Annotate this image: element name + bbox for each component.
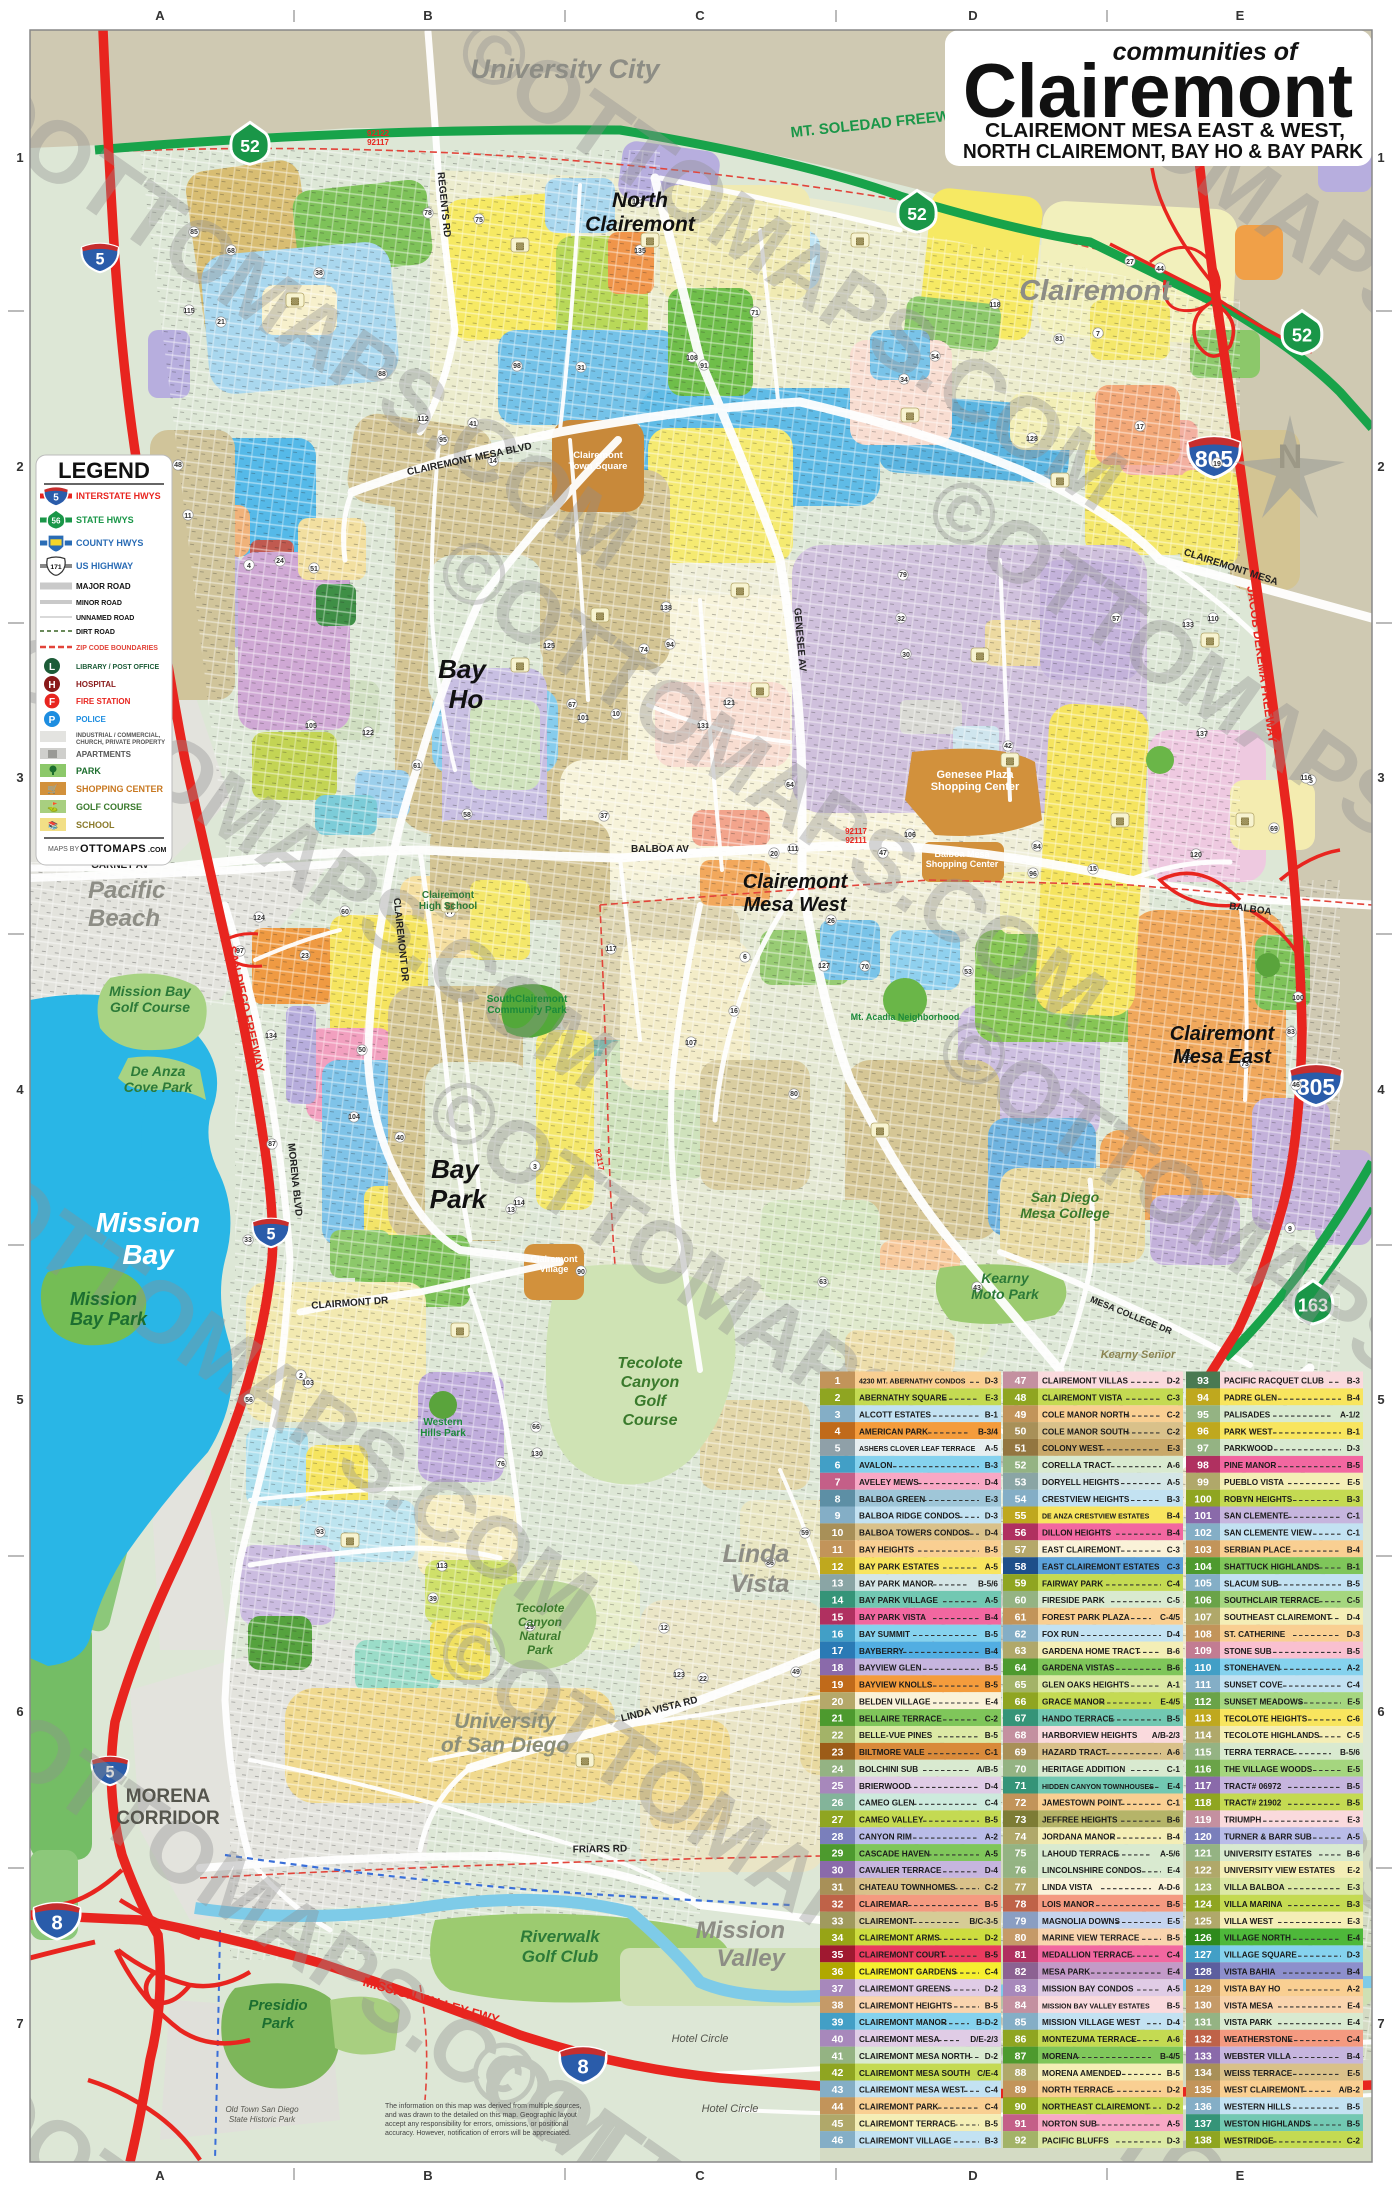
svg-text:STONEHAVEN: STONEHAVEN: [1224, 1664, 1280, 1673]
svg-text:84: 84: [1015, 2000, 1027, 2012]
svg-text:CAMEO GLEN: CAMEO GLEN: [859, 1799, 915, 1808]
svg-text:38: 38: [832, 2000, 844, 2012]
svg-text:C-4: C-4: [1347, 2035, 1361, 2044]
svg-text:6: 6: [835, 1460, 841, 1472]
svg-text:CLAIREMONT VISTA: CLAIREMONT VISTA: [1042, 1394, 1122, 1403]
svg-text:C-4: C-4: [1167, 1579, 1181, 1588]
svg-text:63: 63: [1015, 1645, 1027, 1657]
svg-text:D-4: D-4: [985, 1478, 999, 1487]
svg-text:B-5: B-5: [1347, 2103, 1361, 2112]
svg-text:US HIGHWAY: US HIGHWAY: [76, 561, 133, 571]
svg-text:HARBORVIEW HEIGHTS: HARBORVIEW HEIGHTS: [1042, 1731, 1138, 1740]
svg-text:B-5: B-5: [1167, 2069, 1181, 2078]
svg-text:A-5/6: A-5/6: [1160, 1849, 1180, 1858]
svg-text:B-5: B-5: [985, 1731, 999, 1740]
svg-text:Hotel Circle: Hotel Circle: [672, 2033, 729, 2045]
svg-text:117: 117: [605, 946, 616, 953]
svg-text:D-3: D-3: [1347, 1630, 1361, 1639]
svg-text:68: 68: [1015, 1730, 1027, 1742]
svg-text:D-4: D-4: [985, 1782, 999, 1791]
svg-text:92: 92: [1015, 2135, 1027, 2147]
svg-text:C-5: C-5: [1167, 1596, 1181, 1605]
svg-text:Hills Park: Hills Park: [420, 1428, 466, 1439]
svg-text:A-5: A-5: [985, 1849, 999, 1858]
svg-text:71: 71: [751, 310, 759, 317]
svg-text:69: 69: [1015, 1747, 1027, 1759]
svg-text:TRACT# 21902: TRACT# 21902: [1224, 1799, 1282, 1808]
svg-text:C-4: C-4: [985, 2086, 999, 2095]
svg-text:CLAIREMONT VILLAGE: CLAIREMONT VILLAGE: [859, 2136, 952, 2145]
svg-text:B-5: B-5: [1347, 1799, 1361, 1808]
svg-text:118: 118: [989, 302, 1000, 309]
svg-text:116: 116: [1195, 1763, 1212, 1775]
svg-text:CLAIREMONT MESA EAST & WEST,: CLAIREMONT MESA EAST & WEST,: [985, 120, 1345, 142]
svg-text:BELLE-VUE PINES: BELLE-VUE PINES: [859, 1731, 933, 1740]
svg-text:3: 3: [835, 1409, 841, 1421]
svg-text:94: 94: [666, 642, 674, 649]
svg-text:52: 52: [1015, 1460, 1027, 1472]
svg-text:HOSPITAL: HOSPITAL: [76, 680, 116, 689]
svg-text:3: 3: [1377, 770, 1384, 785]
svg-text:110: 110: [1195, 1662, 1212, 1674]
svg-text:D/E-2/3: D/E-2/3: [970, 2035, 998, 2044]
svg-text:63: 63: [819, 1279, 827, 1286]
svg-text:72: 72: [1015, 1797, 1027, 1809]
svg-text:JEFFREE HEIGHTS: JEFFREE HEIGHTS: [1042, 1816, 1118, 1825]
svg-text:E-5: E-5: [1347, 2069, 1360, 2078]
svg-text:PADRE GLEN: PADRE GLEN: [1224, 1394, 1277, 1403]
svg-text:PARK WEST: PARK WEST: [1224, 1427, 1273, 1436]
svg-text:805: 805: [1297, 1074, 1336, 1100]
svg-text:106: 106: [1194, 1595, 1212, 1607]
svg-text:BELDEN VILLAGE: BELDEN VILLAGE: [859, 1697, 931, 1706]
svg-text:BAY HEIGHTS: BAY HEIGHTS: [859, 1546, 915, 1555]
svg-text:CLAIREMONT VILLAS: CLAIREMONT VILLAS: [1042, 1377, 1129, 1386]
svg-text:49: 49: [1015, 1409, 1027, 1421]
svg-text:51: 51: [310, 566, 318, 573]
svg-text:LAHOUD TERRACE: LAHOUD TERRACE: [1042, 1849, 1119, 1858]
svg-text:CLAIREMONT GARDENS: CLAIREMONT GARDENS: [859, 1968, 957, 1977]
svg-text:San Diego: San Diego: [1031, 1189, 1100, 1205]
svg-text:AVELEY MEWS: AVELEY MEWS: [859, 1478, 919, 1487]
svg-text:C-4: C-4: [985, 1968, 999, 1977]
svg-text:60: 60: [341, 909, 349, 916]
svg-text:SouthClairemont: SouthClairemont: [487, 994, 568, 1005]
svg-text:61: 61: [1015, 1611, 1027, 1623]
svg-text:44: 44: [832, 2101, 844, 2113]
svg-text:BAY PARK ESTATES: BAY PARK ESTATES: [859, 1562, 940, 1571]
svg-text:5: 5: [16, 1392, 23, 1407]
svg-text:101: 101: [1194, 1510, 1212, 1522]
svg-text:B-5: B-5: [985, 1816, 999, 1825]
svg-text:12: 12: [832, 1561, 844, 1573]
svg-text:Tecolote: Tecolote: [617, 1355, 682, 1372]
svg-text:B-5/6: B-5/6: [978, 1579, 998, 1588]
svg-text:VILLAGE NORTH: VILLAGE NORTH: [1224, 1934, 1291, 1943]
svg-text:ROBYN HEIGHTS: ROBYN HEIGHTS: [1224, 1495, 1293, 1504]
svg-text:▩: ▩: [905, 411, 914, 422]
svg-text:E-4: E-4: [1347, 1934, 1360, 1943]
svg-text:64: 64: [786, 782, 794, 789]
svg-text:C-1: C-1: [1167, 1799, 1181, 1808]
svg-text:B-5: B-5: [985, 1900, 999, 1909]
svg-text:INDUSTRIAL / COMMERCIAL,: INDUSTRIAL / COMMERCIAL,: [76, 733, 161, 739]
svg-text:B-5: B-5: [985, 2001, 999, 2010]
svg-text:State Historic Park: State Historic Park: [229, 2115, 296, 2124]
svg-text:C-1: C-1: [1167, 1765, 1181, 1774]
svg-text:B-1: B-1: [985, 1411, 999, 1420]
svg-text:L: L: [49, 662, 55, 673]
svg-text:C-4: C-4: [985, 2103, 999, 2112]
svg-text:44: 44: [1156, 266, 1164, 273]
svg-text:CLAIREMONT MESA: CLAIREMONT MESA: [859, 2035, 940, 2044]
svg-text:5: 5: [1377, 1392, 1384, 1407]
svg-text:E-4: E-4: [985, 1697, 998, 1706]
svg-text:AVALON: AVALON: [859, 1461, 892, 1470]
svg-text:31: 31: [832, 1882, 844, 1894]
svg-text:D-4: D-4: [985, 1866, 999, 1875]
svg-text:D: D: [968, 2168, 977, 2183]
svg-text:DILLON HEIGHTS: DILLON HEIGHTS: [1042, 1529, 1112, 1538]
svg-text:42: 42: [1004, 743, 1012, 750]
svg-text:D-2: D-2: [1167, 2103, 1181, 2112]
svg-text:127: 127: [818, 963, 830, 970]
svg-text:D-2: D-2: [1167, 2086, 1181, 2095]
svg-text:21: 21: [832, 1713, 844, 1725]
svg-text:2: 2: [1377, 459, 1384, 474]
svg-text:Mesa College: Mesa College: [1020, 1205, 1110, 1221]
svg-text:110: 110: [1207, 616, 1218, 623]
svg-text:TECOLOTE HIGHLANDS: TECOLOTE HIGHLANDS: [1224, 1731, 1320, 1740]
svg-text:ABERNATHY SQUARE: ABERNATHY SQUARE: [859, 1394, 947, 1403]
svg-text:B-3: B-3: [1347, 1900, 1361, 1909]
svg-text:Community Park: Community Park: [487, 1005, 567, 1016]
svg-text:B-3: B-3: [1347, 1377, 1361, 1386]
svg-text:CAMEO VALLEY: CAMEO VALLEY: [859, 1816, 924, 1825]
svg-text:BAY PARK VILLAGE: BAY PARK VILLAGE: [859, 1596, 939, 1605]
svg-text:122: 122: [1194, 1865, 1212, 1877]
svg-text:MORENA AMENDED: MORENA AMENDED: [1042, 2069, 1122, 2078]
svg-text:100: 100: [1292, 995, 1304, 1002]
svg-text:MESA PARK: MESA PARK: [1042, 1968, 1090, 1977]
svg-text:OTTOMAPS: OTTOMAPS: [80, 843, 146, 855]
svg-text:130: 130: [1194, 2000, 1212, 2012]
svg-text:C-3: C-3: [1167, 1546, 1181, 1555]
svg-text:VILLAGE SQUARE: VILLAGE SQUARE: [1224, 1951, 1297, 1960]
svg-text:B-3/4: B-3/4: [978, 1427, 998, 1436]
svg-text:42: 42: [832, 2067, 844, 2079]
svg-text:HAZARD TRACT: HAZARD TRACT: [1042, 1748, 1107, 1757]
svg-text:SOUTHEAST CLAIREMONT: SOUTHEAST CLAIREMONT: [1224, 1613, 1331, 1622]
svg-text:123: 123: [1194, 1882, 1212, 1894]
svg-text:22: 22: [699, 1676, 707, 1683]
svg-text:BELLAIRE TERRACE: BELLAIRE TERRACE: [859, 1714, 942, 1723]
svg-text:▩: ▩: [975, 651, 984, 662]
svg-text:C-2: C-2: [985, 1883, 999, 1892]
svg-text:75: 75: [475, 217, 483, 224]
svg-text:58: 58: [463, 812, 471, 819]
svg-text:93: 93: [316, 1529, 324, 1536]
svg-text:CHATEAU TOWNHOMES: CHATEAU TOWNHOMES: [859, 1883, 956, 1892]
svg-text:E-3: E-3: [1347, 1816, 1360, 1825]
svg-text:WEISS TERRACE: WEISS TERRACE: [1224, 2069, 1293, 2078]
svg-text:B-3: B-3: [985, 1461, 999, 1470]
svg-text:61: 61: [413, 763, 421, 770]
svg-text:88: 88: [378, 371, 386, 378]
svg-text:CLAIREMONT GREENS: CLAIREMONT GREENS: [859, 1984, 951, 1993]
svg-text:13: 13: [507, 1207, 515, 1214]
svg-text:16: 16: [832, 1628, 844, 1640]
svg-text:UNIVERSITY ESTATES: UNIVERSITY ESTATES: [1224, 1849, 1312, 1858]
svg-text:TRACT# 06972: TRACT# 06972: [1224, 1782, 1282, 1791]
svg-text:WESTRIDGE: WESTRIDGE: [1224, 2136, 1274, 2145]
svg-text:INTERSTATE HWYS: INTERSTATE HWYS: [76, 491, 161, 501]
svg-text:81: 81: [1055, 336, 1063, 343]
svg-text:SAN CLEMENTE: SAN CLEMENTE: [1224, 1512, 1289, 1521]
svg-text:41: 41: [469, 421, 477, 428]
svg-text:102: 102: [1194, 1527, 1212, 1539]
svg-text:WEATHERSTONE: WEATHERSTONE: [1224, 2035, 1293, 2044]
svg-text:91: 91: [700, 363, 708, 370]
svg-text:A-5: A-5: [1347, 1833, 1361, 1842]
svg-text:LINDA VISTA: LINDA VISTA: [1042, 1883, 1093, 1892]
svg-text:High School: High School: [419, 901, 478, 912]
svg-text:E-3: E-3: [985, 1495, 998, 1504]
svg-text:105: 105: [1194, 1578, 1212, 1590]
svg-text:GLEN OAKS HEIGHTS: GLEN OAKS HEIGHTS: [1042, 1681, 1130, 1690]
svg-text:90: 90: [577, 1269, 585, 1276]
svg-text:Tecolote: Tecolote: [516, 1601, 565, 1615]
svg-text:B-6: B-6: [1167, 1816, 1181, 1825]
svg-text:Bay: Bay: [438, 654, 487, 684]
svg-text:171: 171: [50, 564, 62, 571]
svg-text:B-5: B-5: [985, 1630, 999, 1639]
svg-text:COLONY WEST: COLONY WEST: [1042, 1444, 1103, 1453]
svg-text:59: 59: [1015, 1578, 1027, 1590]
svg-text:BAYVIEW KNOLLS: BAYVIEW KNOLLS: [859, 1681, 933, 1690]
svg-text:B-6: B-6: [1347, 1849, 1361, 1858]
svg-text:HANDO TERRACE: HANDO TERRACE: [1042, 1714, 1114, 1723]
svg-text:BRIERWOOD: BRIERWOOD: [859, 1782, 911, 1791]
svg-text:Pacific: Pacific: [88, 877, 165, 904]
svg-text:A-6: A-6: [1167, 1461, 1181, 1470]
svg-text:E-4: E-4: [1167, 1968, 1180, 1977]
svg-text:Golf: Golf: [634, 1393, 668, 1410]
svg-text:Kearny: Kearny: [981, 1270, 1030, 1286]
svg-text:13: 13: [832, 1578, 844, 1590]
svg-text:E-5: E-5: [1347, 1765, 1360, 1774]
svg-text:118: 118: [1195, 1797, 1212, 1809]
svg-text:Park: Park: [527, 1643, 554, 1657]
svg-text:15: 15: [1089, 866, 1097, 873]
svg-text:B-D-2: B-D-2: [976, 2018, 998, 2027]
svg-text:8: 8: [835, 1493, 841, 1505]
svg-text:74: 74: [1015, 1831, 1027, 1843]
svg-text:University City: University City: [470, 54, 661, 84]
svg-text:GOLF COURSE: GOLF COURSE: [76, 802, 142, 812]
svg-text:52: 52: [1292, 325, 1312, 345]
svg-text:C-4/5: C-4/5: [1160, 1613, 1180, 1622]
svg-text:47: 47: [1015, 1375, 1027, 1387]
svg-text:69: 69: [1270, 826, 1278, 833]
svg-text:11: 11: [832, 1544, 843, 1556]
svg-text:124: 124: [253, 915, 265, 922]
svg-text:A/B-2/3: A/B-2/3: [1152, 1731, 1181, 1740]
svg-text:BALBOA TOWERS CONDOS: BALBOA TOWERS CONDOS: [859, 1529, 971, 1538]
svg-text:EAST CLAIREMONT ESTATES: EAST CLAIREMONT ESTATES: [1042, 1562, 1160, 1571]
svg-text:B: B: [423, 8, 432, 23]
svg-text:6: 6: [1377, 1704, 1384, 1719]
svg-text:92117: 92117: [367, 138, 389, 147]
svg-text:D-2: D-2: [985, 1984, 999, 1993]
svg-text:CORELLA TRACT: CORELLA TRACT: [1042, 1461, 1111, 1470]
svg-text:2: 2: [835, 1392, 841, 1404]
svg-text:Balboa Mesa: Balboa Mesa: [934, 849, 990, 859]
svg-text:85: 85: [1015, 2017, 1027, 2029]
svg-text:SUNSET MEADOWS: SUNSET MEADOWS: [1224, 1697, 1304, 1706]
svg-text:43: 43: [832, 2084, 844, 2096]
svg-text:B-5: B-5: [1167, 2001, 1181, 2010]
svg-text:B-5: B-5: [1347, 2119, 1361, 2128]
svg-text:52: 52: [907, 204, 927, 224]
svg-text:PUEBLO VISTA: PUEBLO VISTA: [1224, 1478, 1284, 1487]
svg-text:B-5: B-5: [985, 1951, 999, 1960]
svg-text:C: C: [695, 8, 705, 23]
svg-text:VISTA BAHIA: VISTA BAHIA: [1224, 1968, 1275, 1977]
svg-text:24: 24: [832, 1763, 844, 1775]
svg-text:STONE SUB: STONE SUB: [1224, 1647, 1272, 1656]
svg-text:B-3: B-3: [1347, 1495, 1361, 1504]
svg-text:80: 80: [1015, 1932, 1027, 1944]
svg-text:D-3: D-3: [1167, 2136, 1181, 2145]
svg-text:113: 113: [436, 1563, 447, 1570]
svg-text:▩: ▩: [290, 296, 299, 307]
svg-text:94: 94: [1197, 1392, 1209, 1404]
svg-text:117: 117: [1195, 1780, 1212, 1792]
svg-text:NORTHEAST CLAIREMONT: NORTHEAST CLAIREMONT: [1042, 2103, 1150, 2112]
svg-text:7: 7: [16, 2016, 23, 2031]
svg-text:55: 55: [1015, 1510, 1027, 1522]
svg-text:75: 75: [1015, 1848, 1027, 1860]
svg-text:Clairemont: Clairemont: [743, 871, 849, 893]
svg-text:TERRA TERRACE: TERRA TERRACE: [1224, 1748, 1294, 1757]
svg-text:50: 50: [358, 1047, 366, 1054]
svg-text:39: 39: [832, 2017, 844, 2029]
svg-text:CLAIREMONT MESA NORTH: CLAIREMONT MESA NORTH: [859, 2052, 971, 2061]
svg-text:70: 70: [861, 964, 869, 971]
svg-text:3: 3: [533, 1164, 537, 1171]
svg-text:10: 10: [612, 711, 620, 718]
svg-text:108: 108: [1194, 1628, 1212, 1640]
svg-text:D-3: D-3: [1347, 1444, 1361, 1453]
svg-text:FIRE STATION: FIRE STATION: [76, 697, 131, 706]
svg-text:ASHERS CLOVER LEAF TERRACE: ASHERS CLOVER LEAF TERRACE: [859, 1446, 976, 1453]
svg-text:26: 26: [832, 1797, 844, 1809]
svg-text:MAPS BY: MAPS BY: [48, 846, 79, 853]
svg-text:EAST CLAIREMONT: EAST CLAIREMONT: [1042, 1546, 1121, 1555]
svg-text:133: 133: [1194, 2050, 1212, 2062]
svg-text:134: 134: [1194, 2067, 1212, 2079]
svg-text:Kearny Senior: Kearny Senior: [1101, 1349, 1176, 1361]
svg-text:52: 52: [240, 136, 260, 156]
svg-text:54: 54: [1015, 1493, 1027, 1505]
svg-text:A/B-5: A/B-5: [977, 1765, 999, 1774]
svg-text:VISTA BAY HO: VISTA BAY HO: [1224, 1984, 1281, 1993]
svg-text:Clairemont: Clairemont: [1170, 1023, 1276, 1045]
svg-text:128: 128: [1194, 1966, 1212, 1978]
svg-text:131: 131: [697, 723, 709, 730]
svg-text:9: 9: [1288, 1226, 1292, 1233]
svg-text:Shopping Center: Shopping Center: [926, 859, 999, 869]
svg-text:E-4: E-4: [1167, 1782, 1180, 1791]
svg-text:98: 98: [513, 363, 521, 370]
svg-text:111: 111: [788, 846, 799, 853]
svg-text:127: 127: [1194, 1949, 1212, 1961]
svg-text:JAMESTOWN POINT: JAMESTOWN POINT: [1042, 1799, 1122, 1808]
svg-text:34: 34: [900, 377, 908, 384]
svg-text:6: 6: [16, 1704, 23, 1719]
svg-text:STATE HWYS: STATE HWYS: [76, 515, 134, 525]
svg-text:66: 66: [1015, 1696, 1027, 1708]
svg-text:4: 4: [1377, 1082, 1385, 1097]
svg-text:▩: ▩: [580, 1756, 589, 1767]
svg-text:BOLCHINI SUB: BOLCHINI SUB: [859, 1765, 918, 1774]
svg-text:130: 130: [531, 1451, 543, 1458]
svg-text:48: 48: [1015, 1392, 1027, 1404]
svg-text:B-4: B-4: [1167, 1833, 1181, 1842]
svg-text:D-4: D-4: [1167, 1630, 1181, 1639]
svg-text:90: 90: [1015, 2101, 1027, 2113]
svg-text:5: 5: [267, 1226, 276, 1244]
svg-text:ALCOTT ESTATES: ALCOTT ESTATES: [859, 1411, 932, 1420]
svg-text:57: 57: [1112, 616, 1120, 623]
svg-text:.COM: .COM: [148, 847, 166, 854]
svg-text:LEGEND: LEGEND: [58, 458, 150, 483]
svg-text:49: 49: [792, 1669, 800, 1676]
svg-text:85: 85: [190, 229, 198, 236]
svg-text:CLAIREMONT: CLAIREMONT: [859, 1917, 914, 1926]
svg-text:1: 1: [16, 150, 23, 165]
svg-text:A-5: A-5: [985, 1444, 999, 1453]
svg-text:A: A: [155, 8, 165, 23]
svg-text:95: 95: [439, 437, 447, 444]
svg-text:Beach: Beach: [88, 905, 160, 932]
svg-text:76: 76: [1015, 1865, 1027, 1877]
svg-text:88: 88: [1015, 2067, 1027, 2079]
svg-text:E-5: E-5: [1347, 1478, 1360, 1487]
svg-text:4230 MT. ABERNATHY CONDOS: 4230 MT. ABERNATHY CONDOS: [859, 1379, 966, 1386]
svg-text:📚: 📚: [48, 821, 58, 830]
svg-text:A-6: A-6: [1167, 1748, 1181, 1757]
svg-text:Canyon: Canyon: [621, 1374, 680, 1391]
svg-text:N: N: [1278, 438, 1303, 476]
svg-text:SLACUM SUB: SLACUM SUB: [1224, 1579, 1279, 1588]
svg-text:CLAIREMONT HEIGHTS: CLAIREMONT HEIGHTS: [859, 2001, 953, 2010]
svg-text:99: 99: [1197, 1476, 1209, 1488]
svg-text:Old Town San Diego: Old Town San Diego: [225, 2105, 299, 2114]
svg-text:Canyon: Canyon: [518, 1615, 562, 1629]
svg-text:B-4: B-4: [1347, 1394, 1361, 1403]
svg-text:89: 89: [1015, 2084, 1027, 2096]
svg-text:40: 40: [832, 2033, 844, 2045]
svg-text:▩: ▩: [875, 1126, 884, 1137]
svg-text:122: 122: [362, 730, 374, 737]
svg-text:Bay: Bay: [431, 1154, 480, 1184]
svg-text:C: C: [695, 2168, 705, 2183]
svg-text:10: 10: [832, 1527, 844, 1539]
svg-text:24: 24: [276, 558, 284, 565]
svg-text:32: 32: [897, 616, 905, 623]
